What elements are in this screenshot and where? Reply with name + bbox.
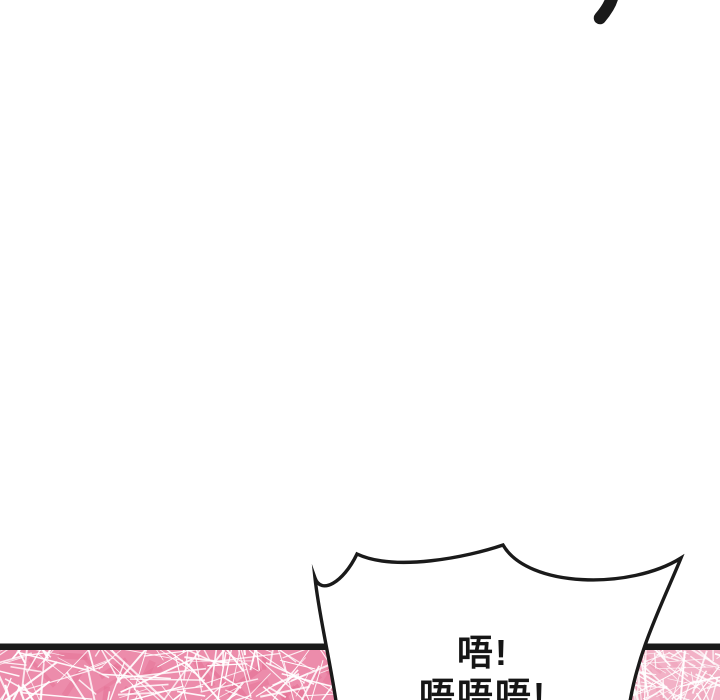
comic-artwork <box>0 0 720 700</box>
brush-stroke <box>600 0 613 18</box>
speech-bubble-text: 唔! 唔唔唔! <box>419 631 547 700</box>
comic-panel: 唔! 唔唔唔! <box>0 0 720 700</box>
dialogue-line-2: 唔唔唔! <box>419 674 547 700</box>
dialogue-line-1: 唔! <box>419 631 547 674</box>
